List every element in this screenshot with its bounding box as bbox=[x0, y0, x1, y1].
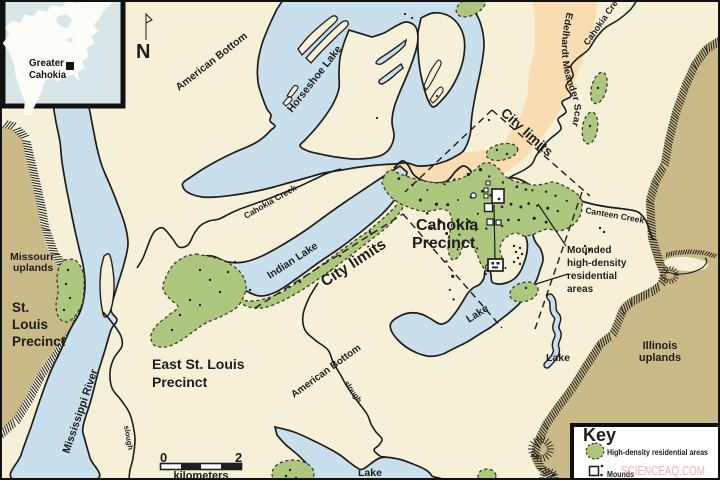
svg-text:Louis: Louis bbox=[12, 317, 48, 332]
svg-text:Greater: Greater bbox=[29, 58, 64, 69]
svg-text:East St. Louis: East St. Louis bbox=[152, 356, 245, 372]
svg-text:Lake: Lake bbox=[546, 352, 570, 364]
svg-text:SCIENCEAQ.COM: SCIENCEAQ.COM bbox=[621, 464, 705, 478]
svg-text:Cahokia: Cahokia bbox=[29, 70, 66, 81]
svg-text:Mounded: Mounded bbox=[567, 245, 611, 256]
svg-text:N: N bbox=[136, 41, 150, 63]
svg-text:Illinois: Illinois bbox=[643, 340, 678, 352]
svg-text:Cahokia: Cahokia bbox=[416, 217, 478, 234]
svg-text:High-density residential areas: High-density residential areas bbox=[607, 447, 708, 457]
svg-text:areas: areas bbox=[567, 284, 594, 295]
svg-text:uplands: uplands bbox=[13, 262, 53, 274]
svg-text:Precinct: Precinct bbox=[412, 235, 476, 252]
svg-text:Precinct: Precinct bbox=[152, 374, 208, 390]
svg-text:residential: residential bbox=[567, 271, 617, 282]
svg-text:Lake: Lake bbox=[358, 467, 382, 479]
svg-text:St.: St. bbox=[12, 300, 29, 315]
svg-text:high-density: high-density bbox=[567, 258, 627, 269]
svg-text:uplands: uplands bbox=[639, 352, 681, 364]
svg-text:Key: Key bbox=[583, 425, 616, 445]
svg-text:Precinct: Precinct bbox=[12, 334, 66, 349]
